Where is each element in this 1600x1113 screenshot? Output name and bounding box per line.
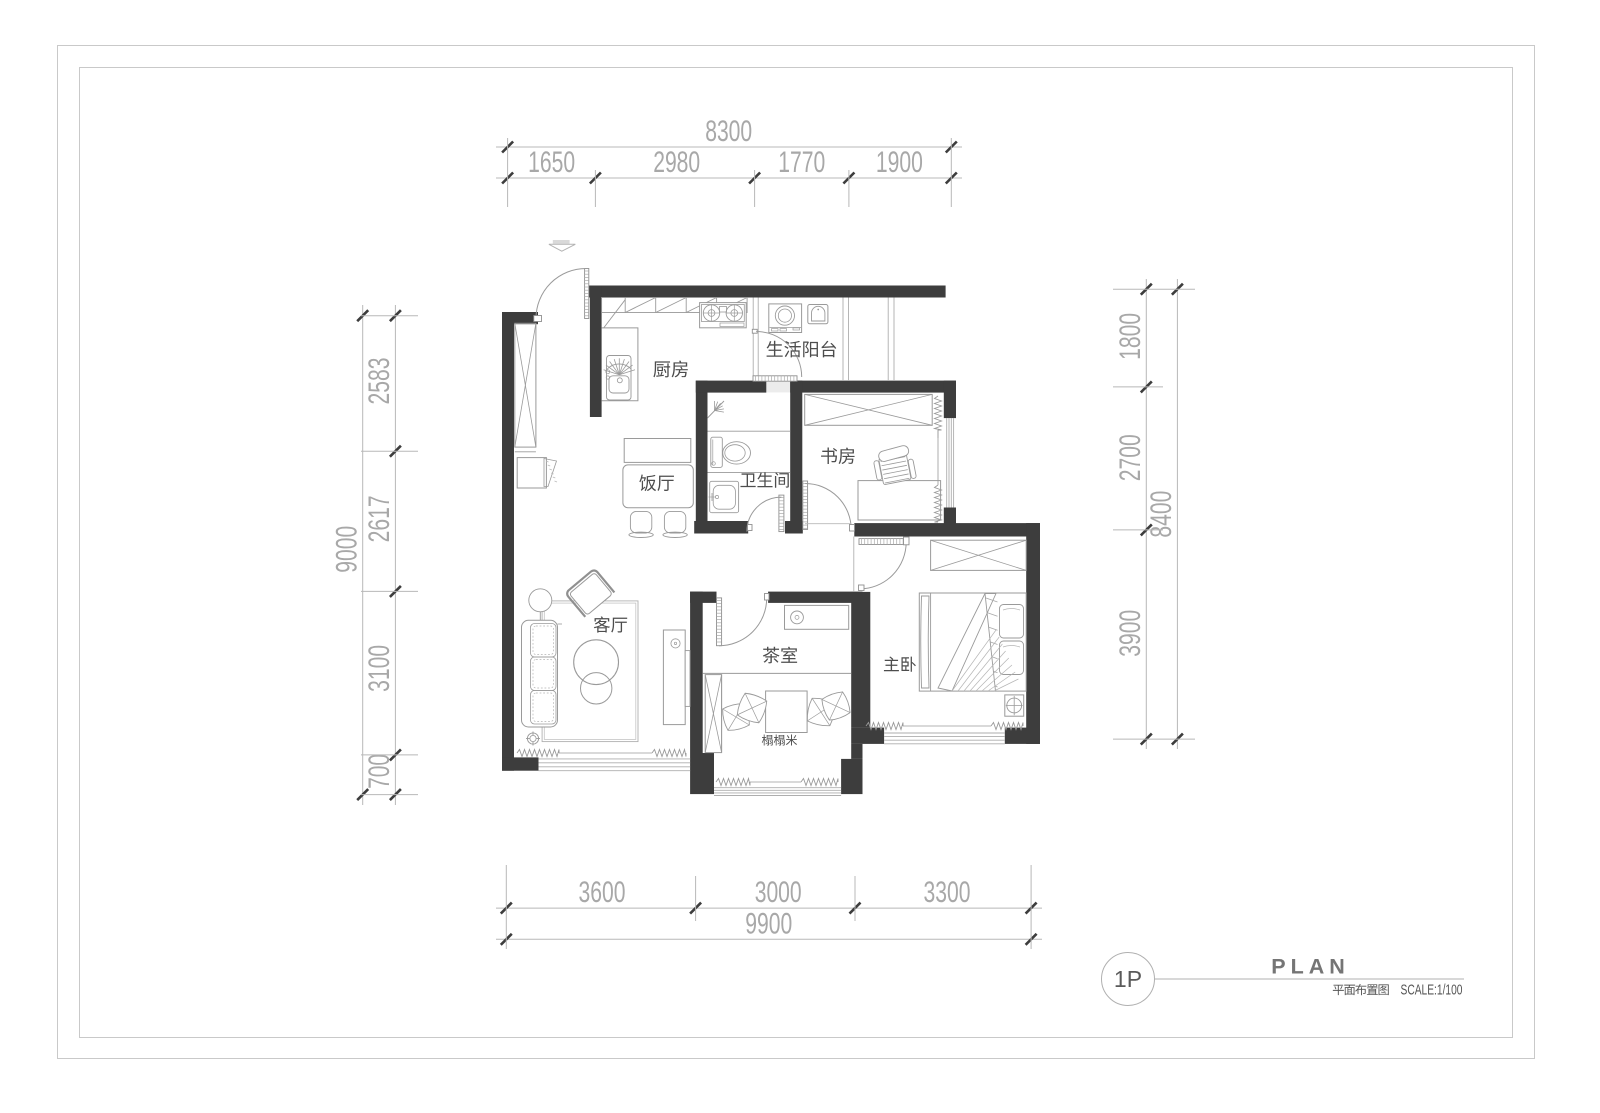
svg-text:2617: 2617 (363, 495, 396, 542)
svg-text:PLAN: PLAN (1271, 955, 1350, 979)
svg-text:3300: 3300 (924, 876, 971, 909)
svg-text:2980: 2980 (653, 146, 700, 179)
svg-text:SCALE:1/100: SCALE:1/100 (1401, 982, 1463, 998)
svg-text:9000: 9000 (331, 526, 364, 573)
svg-text:3100: 3100 (363, 645, 396, 692)
svg-text:2700: 2700 (1114, 434, 1147, 481)
svg-text:1900: 1900 (876, 146, 923, 179)
svg-text:1P: 1P (1114, 966, 1142, 992)
svg-text:1770: 1770 (778, 146, 825, 179)
svg-text:3900: 3900 (1114, 610, 1147, 657)
svg-text:8400: 8400 (1145, 491, 1178, 538)
svg-text:700: 700 (363, 754, 396, 789)
svg-text:3600: 3600 (579, 876, 626, 909)
svg-text:1800: 1800 (1114, 313, 1147, 360)
svg-text:1650: 1650 (528, 146, 575, 179)
svg-text:8300: 8300 (705, 115, 752, 148)
svg-text:2583: 2583 (363, 358, 396, 405)
svg-text:3000: 3000 (755, 876, 802, 909)
svg-text:9900: 9900 (745, 908, 792, 941)
